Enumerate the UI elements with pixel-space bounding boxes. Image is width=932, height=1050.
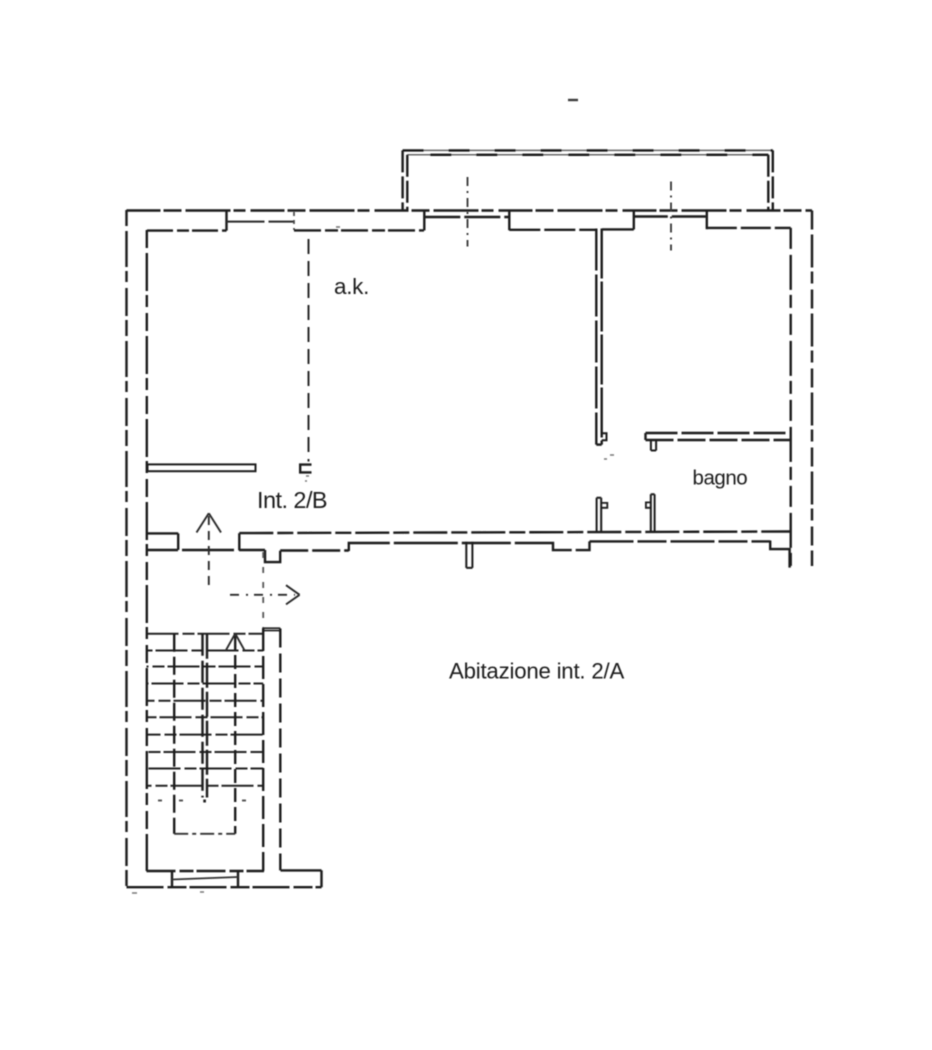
svg-text:Int. 2/B: Int. 2/B <box>257 487 327 513</box>
svg-text:a.k.: a.k. <box>334 274 369 299</box>
svg-text:Abitazione int. 2/A: Abitazione int. 2/A <box>449 659 624 684</box>
svg-text:bagno: bagno <box>693 467 748 490</box>
